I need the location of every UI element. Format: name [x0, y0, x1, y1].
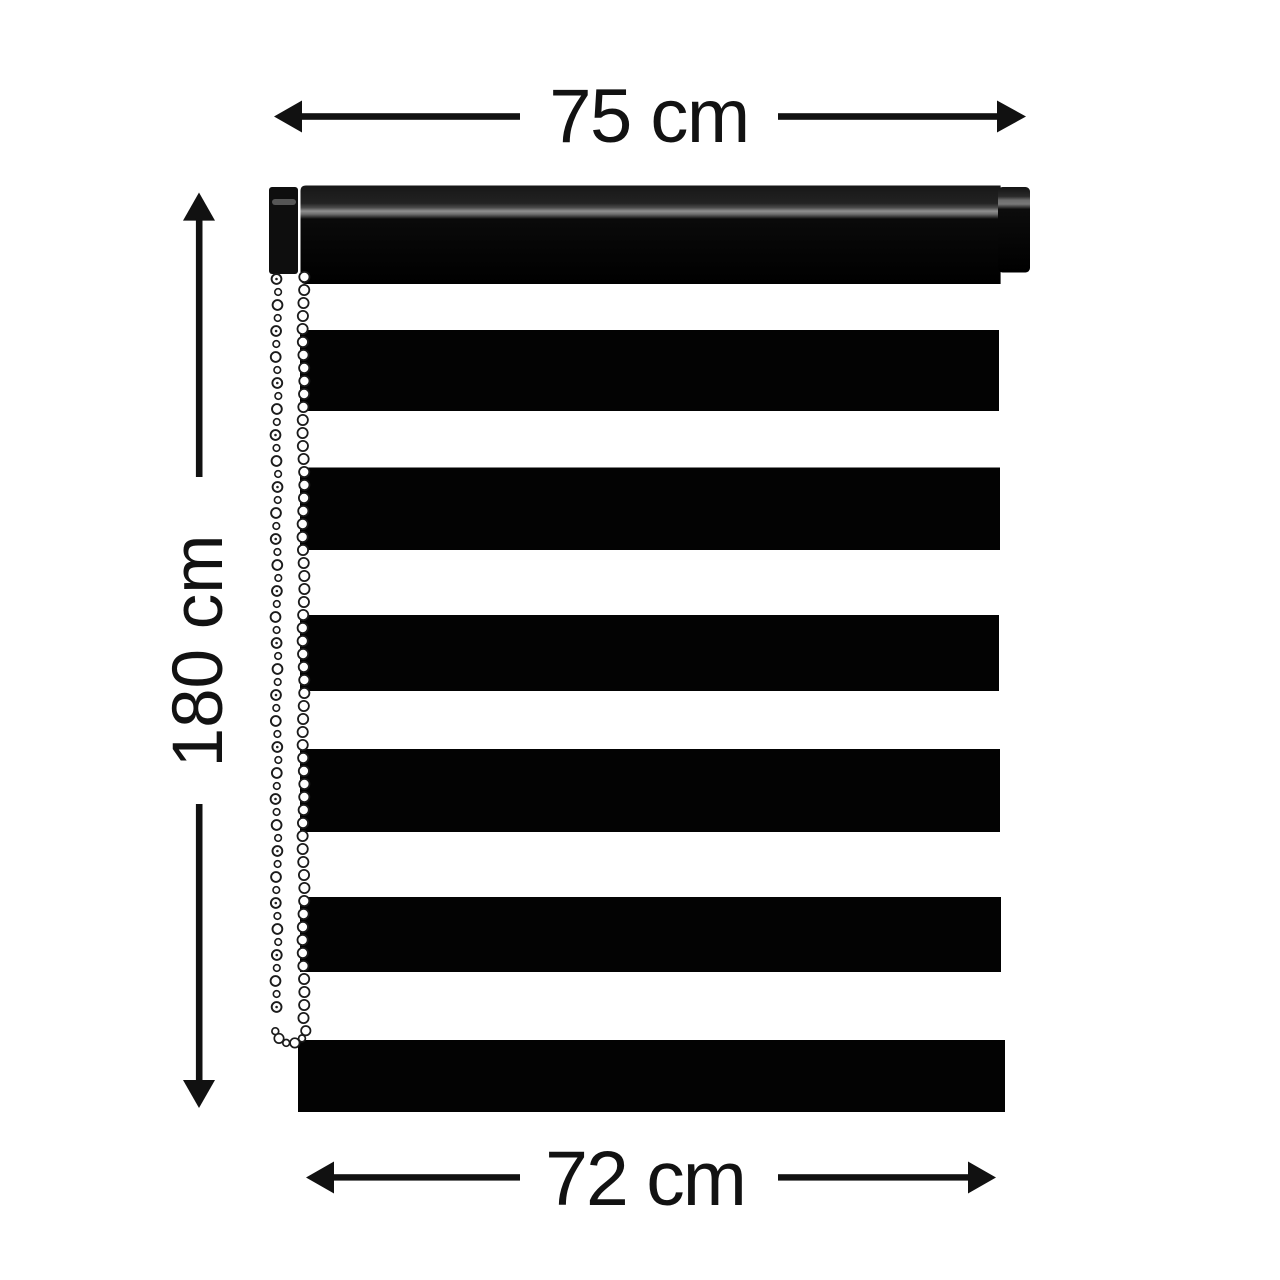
- svg-text:180 cm: 180 cm: [159, 535, 238, 768]
- svg-text:75 cm: 75 cm: [549, 74, 748, 159]
- svg-text:72 cm: 72 cm: [545, 1136, 745, 1222]
